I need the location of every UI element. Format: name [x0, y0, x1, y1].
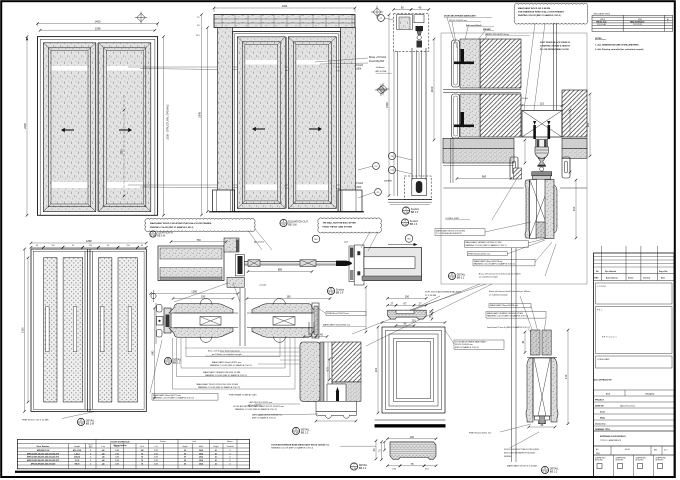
svg-text:2.10: 2.10	[115, 450, 118, 452]
svg-text:ARJ 9017/AL: ARJ 9017/AL	[376, 70, 387, 73]
svg-text:MAHOGANY Wood 140/18 mm: MAHOGANY Wood 140/18 mm	[490, 304, 518, 307]
svg-text:Height: Height	[214, 445, 219, 448]
svg-text:DOOR SCHEDULE: DOOR SCHEDULE	[110, 442, 130, 444]
svg-text:PROJECT: PROJECT	[595, 400, 605, 402]
svg-text:41: 41	[215, 456, 217, 459]
svg-text:45: 45	[107, 245, 109, 247]
svg-text:Seal: Seal	[606, 394, 610, 396]
svg-text:90: 90	[184, 464, 186, 466]
svg-text:MPLE 2 NO 2): MPLE 2 NO 2)	[248, 405, 261, 407]
svg-text:MAHOGANY Wood B345 mm: MAHOGANY Wood B345 mm	[323, 324, 350, 327]
svg-text:Soft wood block: Soft wood block	[466, 24, 482, 27]
svg-text:120: 120	[411, 319, 416, 323]
svg-text:12 X 45 MM: 12 X 45 MM	[425, 295, 436, 297]
svg-text:1.07: 1.07	[154, 450, 157, 452]
svg-text:200.4: 200.4	[199, 456, 203, 459]
svg-text:1:M: 1:M	[166, 363, 170, 365]
svg-text:2110: 2110	[21, 327, 25, 333]
svg-text:PANNING COLOR (REF 07-SAMPLE 2: PANNING COLOR (REF 07-SAMPLE 2 NO 2)	[235, 408, 277, 411]
svg-text:MID: MID	[151, 351, 155, 356]
svg-text:1.07: 1.07	[154, 457, 157, 459]
svg-text:210: 210	[374, 367, 378, 372]
svg-text:750: 750	[196, 238, 201, 242]
svg-text:1280: 1280	[191, 290, 197, 294]
svg-text:200.4: 200.4	[199, 463, 203, 466]
svg-text:PAINTING COLOR (REF 07-SAMPLE: PAINTING COLOR (REF 07-SAMPLE 2 NO 2)	[518, 14, 561, 17]
svg-text:INCLUDED IN HAFER 9730-9530: INCLUDED IN HAFER 9730-9530	[504, 451, 536, 454]
svg-text:1- ALL DIMENSIONS ARE IN MILLI: 1- ALL DIMENSIONS ARE IN MILLIMETERS .	[595, 44, 640, 47]
svg-text:PINE FRAME 30 MM BY DAG: PINE FRAME 30 MM BY DAG	[229, 393, 257, 396]
svg-text:1.07: 1.07	[154, 460, 157, 462]
svg-text:MAHOGANY Wood 140X21 mm: MAHOGANY Wood 140X21 mm	[212, 361, 242, 364]
svg-text:1:M: 1:M	[543, 472, 547, 474]
svg-text:corridor: corridor	[259, 284, 267, 287]
svg-text:PANNING COLOR (REF 07-SAMPLE 2: PANNING COLOR (REF 07-SAMPLE 2 NO 2)	[474, 263, 515, 266]
svg-text:110: 110	[540, 102, 545, 106]
svg-text:No of: No of	[89, 445, 93, 447]
svg-text:PANNING COLOR (REF 07-SAMPLE 2: PANNING COLOR (REF 07-SAMPLE 2 NO 2)	[487, 315, 528, 318]
svg-text:1:M: 1:M	[294, 433, 298, 435]
svg-text:2: 2	[230, 453, 231, 455]
svg-text:190: 190	[201, 295, 206, 299]
svg-text:APB-DR-01-02: APB-DR-01-02	[37, 449, 50, 452]
svg-text:+40: +40	[102, 456, 105, 459]
svg-text:APB-03-DR-306-306-360-310-302-: APB-03-DR-306-306-360-310-302-073	[27, 459, 59, 462]
svg-text:ASSOCIATED DWGS: ASSOCIATED DWGS	[594, 12, 611, 15]
svg-text:1-42+1: 1-42+1	[74, 452, 79, 455]
svg-text:MAHOGANY WOOD 120 X 45 MM: MAHOGANY WOOD 120 X 45 MM	[518, 7, 550, 10]
svg-text:1298: 1298	[95, 26, 101, 30]
svg-text:BB 1:2: BB 1:2	[457, 276, 465, 279]
svg-text:HAFER -0910-A120 Series: HAFER -0910-A120 Series	[485, 33, 509, 36]
svg-text:CONSULTANT :: CONSULTANT :	[597, 358, 611, 361]
svg-text:1:M: 1:M	[352, 468, 356, 470]
svg-text:90: 90	[184, 453, 186, 455]
svg-text:90: 90	[184, 457, 186, 459]
svg-text:BB 1:F: BB 1:F	[410, 223, 418, 226]
svg-text:PANNING COLOR (REF 07-SAMPLE 2: PANNING COLOR (REF 07-SAMPLE 2 NO 2)	[271, 447, 313, 450]
svg-text:THE DIMENSION FIXED IN ALL DOO: THE DIMENSION FIXED IN ALL DOOR FRAMES	[518, 11, 564, 14]
svg-text:1/1/8: 1/1/8	[392, 469, 396, 471]
svg-text:2.10: 2.10	[115, 457, 118, 459]
svg-text:41: 41	[215, 452, 217, 455]
svg-text:APL-01-06: APL-01-06	[73, 449, 81, 452]
svg-text:120: 120	[89, 245, 92, 247]
svg-text:DOOR ARCHITRAVE BASE MAHOGANY: DOOR ARCHITRAVE BASE MAHOGANY WOOD 120X4…	[271, 443, 330, 446]
svg-text:2: 2	[230, 460, 231, 462]
svg-text:DOOR ARCHITRAVE MAHOGANY: DOOR ARCHITRAVE MAHOGANY	[444, 15, 477, 18]
svg-text:2: 2	[90, 453, 91, 455]
svg-text:1: 1	[668, 22, 669, 24]
svg-text:1:M: 1:M	[329, 293, 333, 295]
svg-text:pin 108mm an submitted sample: pin 108mm an submitted sample	[212, 353, 242, 356]
svg-text:FLUSH: FLUSH	[521, 98, 528, 100]
svg-text:WOOD 100X45 mm: WOOD 100X45 mm	[455, 344, 473, 346]
svg-text:Fixed Mfg 80h: Fixed Mfg 80h	[369, 60, 385, 63]
svg-text:44: 44	[141, 245, 143, 247]
svg-text:+40: +40	[102, 459, 105, 462]
svg-text:MAHOGANY Wood 40X21 mm.: MAHOGANY Wood 40X21 mm.	[153, 394, 182, 397]
svg-text:PINE WOOD 120 X 21 MM: PINE WOOD 120 X 21 MM	[22, 420, 49, 422]
svg-text:PANNING COLOR (REF 07-SAMPLE 2: PANNING COLOR (REF 07-SAMPLE 2 NO 2)	[210, 364, 252, 367]
svg-text:PANNING COLOR (REF 07-SAMPLE 2: PANNING COLOR (REF 07-SAMPLE 2 NO 2)	[153, 397, 194, 400]
svg-text:Baune: Baune	[227, 441, 232, 443]
svg-text:Level: Level	[74, 446, 80, 448]
svg-text:Checked: Checked	[643, 278, 650, 280]
svg-text:A0: A0	[596, 448, 598, 451]
svg-text:MAHOGANY WOOD 1350 45 MM STUD: MAHOGANY WOOD 1350 45 MM STUD IN ALL DOO…	[150, 222, 212, 225]
svg-text:MAHOGANY WOOD 120X45 mm.: MAHOGANY WOOD 120X45 mm.	[252, 414, 283, 417]
svg-text:C L I E N T :: C L I E N T :	[597, 286, 608, 288]
svg-text:0Ap/technical Seal: 0Ap/technical Seal	[620, 405, 635, 408]
svg-text:INTERNAL DOOR DETAILS: INTERNAL DOOR DETAILS	[600, 435, 626, 438]
svg-text:1364: 1364	[282, 4, 288, 8]
svg-text:THE WALL MUST BE BUILT AFTER: THE WALL MUST BE BUILT AFTER	[323, 222, 357, 225]
svg-text:300: 300	[586, 122, 590, 127]
svg-text:1:M: 1:M	[450, 278, 454, 280]
svg-text:FAAD SCHEDULE: FAAD SCHEDULE	[630, 21, 645, 24]
svg-text:Date: Date	[661, 277, 665, 280]
svg-text:1:M: 1:M	[403, 224, 407, 226]
svg-text:Height: Height	[183, 445, 188, 448]
svg-text:2: 2	[230, 457, 231, 459]
svg-text:2: 2	[90, 457, 91, 459]
svg-text:CONSTRUCTION AT A HEIGHT: CONSTRUCTION AT A HEIGHT	[540, 45, 571, 48]
svg-text:960: 960	[482, 175, 487, 179]
svg-text:2: 2	[230, 450, 231, 452]
svg-text:1:M: 1:M	[151, 236, 155, 238]
svg-text:2100: 2100	[430, 86, 434, 92]
svg-text:an submitted sample.: an submitted sample.	[489, 293, 508, 296]
svg-text:90: 90	[184, 450, 186, 452]
svg-text:7027-37-202: 7027-37-202	[633, 24, 642, 26]
svg-text:Scale: Scale	[600, 412, 605, 414]
svg-text:Width: Width	[199, 445, 203, 448]
svg-text:74: 74	[141, 463, 143, 466]
svg-text:MAHOGANY WOOD 27X21 MM: MAHOGANY WOOD 27X21 MM	[436, 229, 465, 232]
svg-text:Amendments: Amendments	[606, 277, 618, 280]
svg-text:1.07: 1.07	[154, 453, 157, 455]
svg-text:1/W-01: 1/W-01	[600, 19, 605, 21]
svg-text:ORF-A1-00-A: ORF-A1-00-A	[596, 21, 607, 24]
svg-text:675: 675	[326, 366, 330, 371]
svg-text:BB 1:M: BB 1:M	[288, 223, 296, 226]
svg-text:SOFT WOOD ARCHITRAVE BACKING: SOFT WOOD ARCHITRAVE BACKING	[425, 290, 461, 293]
svg-text:Hng th: Hng th	[115, 445, 120, 448]
svg-text:(REF 07-SAMPLE 2 NO 2): (REF 07-SAMPLE 2 NO 2)	[252, 417, 276, 420]
svg-text:PANNING COLOR (REF 07-SAMPLE 2: PANNING COLOR (REF 07-SAMPLE 2 NO 2)	[205, 374, 247, 377]
svg-text:SERIES: SERIES	[504, 456, 512, 458]
svg-text:2: 2	[230, 464, 231, 466]
svg-text:2.10: 2.10	[115, 460, 118, 462]
svg-text:1650: 1650	[122, 149, 124, 155]
svg-text:SC 1: SC 1	[664, 450, 668, 452]
svg-text:Drawn: Drawn	[628, 278, 634, 280]
svg-text:8/1/L: 8/1/L	[425, 469, 429, 471]
svg-text:Drs affected: Drs affected	[605, 270, 617, 273]
svg-text:PINE Wood 120X21 mm.: PINE Wood 120X21 mm.	[327, 313, 350, 315]
svg-text:+40: +40	[102, 452, 105, 455]
svg-text:154: 154	[127, 245, 130, 247]
svg-text:190: 190	[405, 295, 410, 299]
svg-text:2345: 2345	[198, 111, 202, 117]
svg-text:2.10: 2.10	[115, 453, 118, 455]
svg-text:+65 Aware: +65 Aware	[376, 66, 385, 69]
svg-text:200.4: 200.4	[199, 449, 203, 452]
svg-text:41: 41	[215, 459, 217, 462]
svg-text:2: 2	[90, 460, 91, 462]
svg-text:Brass with bronze finish half-: Brass with bronze finish half-round pin …	[479, 273, 521, 276]
svg-text:MAHOGANY VENEER DIN WGF 12 MM: MAHOGANY VENEER DIN WGF 12 MM	[203, 371, 240, 374]
svg-text:740: 740	[141, 449, 144, 452]
svg-text:Checked by: Checked by	[595, 424, 607, 426]
svg-text:200.4: 200.4	[199, 459, 203, 462]
svg-text:BB 1:2: BB 1:2	[173, 361, 181, 364]
svg-text:2400: 2400	[385, 102, 389, 108]
svg-text:APB-02-DR-206-206-260-310-202-: APB-02-DR-206-206-260-310-202-072	[27, 456, 59, 459]
svg-text:190: 190	[286, 295, 291, 299]
svg-text:C set: C set	[101, 445, 105, 448]
svg-text:45: 45	[72, 245, 74, 247]
svg-text:1:M: 1:M	[404, 212, 408, 214]
svg-text:TYPE D1 - APARTMENTS: TYPE D1 - APARTMENTS	[600, 439, 622, 442]
svg-text:MAHOGANY Wood 140X18 mm: MAHOGANY Wood 140X18 mm	[474, 260, 503, 263]
svg-text:44: 44	[36, 245, 38, 247]
svg-text:PANNING COLOR (REF 07-SAMPLE 2: PANNING COLOR (REF 07-SAMPLE 2 NO 2)	[465, 244, 506, 247]
svg-text:SOFT WOOD BLOCK FIXED IN: SOFT WOOD BLOCK FIXED IN	[540, 42, 570, 44]
svg-text:2-48+02: 2-48+02	[74, 456, 80, 459]
svg-text:PANNING COLOR (REF 07-SAMPLE 5: PANNING COLOR (REF 07-SAMPLE 5 NO 2)	[198, 386, 240, 389]
svg-text:BB 1:2: BB 1:2	[359, 467, 367, 470]
svg-text:90: 90	[184, 460, 186, 462]
svg-text:Brass +70 finish: Brass +70 finish	[369, 56, 387, 59]
svg-text:41: 41	[215, 463, 217, 466]
svg-text:Door Number: Door Number	[37, 446, 50, 448]
svg-text:2345: 2345	[23, 123, 27, 129]
svg-text:2300 - STRUCTURAL OPENING: 2300 - STRUCTURAL OPENING	[167, 104, 170, 139]
svg-text:TO CONCEAL ACCESSORY: TO CONCEAL ACCESSORY	[436, 232, 463, 235]
svg-text:120: 120	[410, 435, 415, 439]
svg-text:Threshold: Threshold	[226, 446, 233, 448]
svg-text:PINE Wood 120X21 mm.: PINE Wood 120X21 mm.	[469, 433, 492, 435]
svg-text:2.10: 2.10	[115, 464, 118, 466]
svg-text:210: 210	[572, 206, 576, 211]
svg-text:P R J :: P R J :	[597, 310, 603, 312]
svg-text:+40: +40	[102, 449, 105, 452]
svg-text:PINE Wood 120X21 mm.: PINE Wood 120X21 mm.	[468, 253, 491, 255]
svg-text:Discipline: Discipline	[646, 394, 655, 396]
svg-text:B F T T o w e r s: B F T T o w e r s	[602, 337, 617, 339]
svg-text:210: 210	[564, 374, 568, 379]
svg-text:MAHOGANY VENEER ON WGF 12 MM: MAHOGANY VENEER ON WGF 12 MM	[487, 312, 523, 315]
svg-text:74: 74	[141, 459, 143, 462]
svg-text:SEAL: SEAL	[600, 417, 606, 420]
svg-text:Apartment: Apartment	[254, 241, 264, 244]
svg-text:2: 2	[90, 450, 91, 452]
svg-text:SH 01: SH 01	[625, 449, 630, 451]
svg-text:880: 880	[278, 268, 283, 272]
svg-text:Dwg's Rev: Dwg's Rev	[659, 271, 668, 273]
svg-text:1298: 1298	[86, 239, 92, 243]
svg-text:FIXING THE EN 12446 SYSTEM: FIXING THE EN 12446 SYSTEM	[323, 225, 353, 228]
svg-text:Frame: Frame	[160, 440, 165, 443]
svg-text:BB 1:2: BB 1:2	[550, 470, 558, 473]
svg-text:2- ALL Painting controlled (as: 2- ALL Painting controlled (as submitted…	[595, 48, 644, 51]
svg-text:DU110 DX03 BOTTOM DOOR GUIDE: DU110 DX03 BOTTOM DOOR GUIDE	[504, 449, 540, 451]
svg-text:Dead head 22 mm th (REF 07-SAM: Dead head 22 mm th (REF 07-SAMPLE 2 NO 2…	[487, 326, 530, 329]
svg-text:154: 154	[52, 245, 55, 247]
svg-text:41: 41	[215, 449, 217, 452]
svg-text:BB 1:F: BB 1:F	[336, 291, 344, 294]
svg-text:DOOR ARCHITRAVE MAHOGANY: DOOR ARCHITRAVE MAHOGANY	[455, 341, 487, 344]
svg-text:BB 1:M: BB 1:M	[86, 422, 94, 425]
svg-text:DRAWING TITLE: DRAWING TITLE	[595, 428, 611, 431]
svg-text:corridor: corridor	[384, 180, 392, 183]
svg-text:+40: +40	[102, 463, 105, 466]
svg-text:1.07: 1.07	[154, 464, 157, 466]
svg-text:BB 1:2: BB 1:2	[301, 431, 309, 434]
svg-text:...ANY WOOD 120X21 mm.: ...ANY WOOD 120X21 mm.	[248, 401, 273, 404]
svg-text:Cw th: Cw th	[140, 445, 144, 448]
svg-text:200.4: 200.4	[199, 452, 203, 455]
svg-text:2: 2	[90, 464, 91, 466]
svg-text:SA CONTRACTOR: SA CONTRACTOR	[594, 379, 612, 382]
svg-text:BB 1:F: BB 1:F	[411, 211, 419, 214]
svg-text:1:M: 1:M	[79, 424, 83, 426]
svg-text:Brass with bronze finish half-: Brass with bronze finish half-round pin …	[489, 290, 530, 293]
svg-text:TL-78: TL-78	[75, 460, 80, 462]
svg-text:wall: wall	[344, 242, 348, 244]
svg-text:APB-02-DR-106-106-160-310-002-: APB-02-DR-106-106-160-310-002-070	[27, 452, 59, 455]
svg-text:BB 1:M: BB 1:M	[157, 235, 165, 237]
svg-text:MAHOGANY WOOD 1195-1200-1205 4: MAHOGANY WOOD 1195-1200-1205 45 MM	[197, 383, 239, 386]
svg-text:1400: 1400	[95, 20, 101, 24]
svg-text:an submitted sample.: an submitted sample.	[479, 276, 499, 279]
svg-text:74: 74	[141, 452, 143, 455]
svg-text:TM-79: TM-79	[75, 464, 80, 466]
svg-text:1:M: 1:M	[282, 225, 286, 227]
svg-text:(REF 07-SAMPLE 3 NO 2): (REF 07-SAMPLE 3 NO 2)	[455, 346, 479, 349]
svg-text:DATE 000: DATE 000	[595, 405, 604, 408]
svg-text:APB-04-DR-406-426-310-402: APB-04-DR-406-426-310-402	[31, 463, 56, 466]
svg-text:74: 74	[141, 456, 143, 459]
svg-text:210 CM FROM FINISH FLOOR: 210 CM FROM FINISH FLOOR	[540, 49, 569, 51]
svg-text:PAINTING COLOR (REF 07-SAMPLE: PAINTING COLOR (REF 07-SAMPLE 6 NO 2)	[150, 226, 194, 229]
svg-text:MAHOGANY WOOD Ø 5 45 MM: MAHOGANY WOOD Ø 5 45 MM	[507, 465, 537, 468]
svg-text:MAHOGANY VENEER ON WGF 12 MM: MAHOGANY VENEER ON WGF 12 MM	[465, 241, 501, 244]
svg-text:Leaf: Leaf	[192, 441, 196, 443]
